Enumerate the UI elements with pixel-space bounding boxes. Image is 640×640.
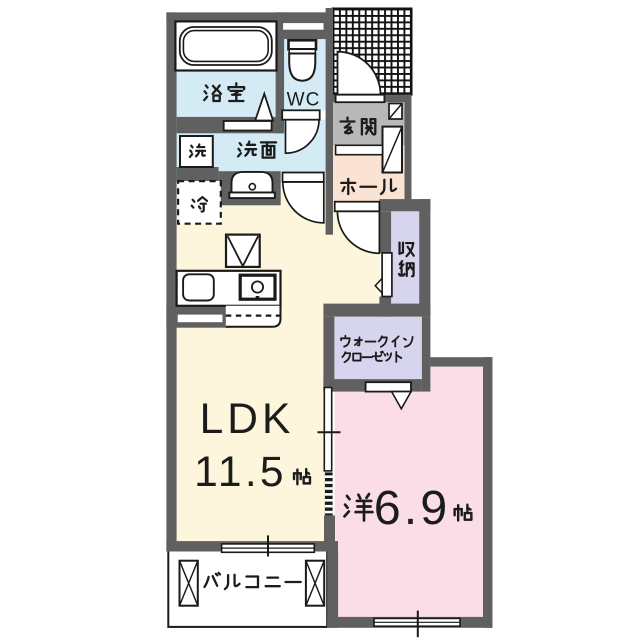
svg-text:LDK: LDK [200, 396, 295, 443]
svg-text:6.9: 6.9 [374, 481, 450, 535]
svg-text:11.5: 11.5 [194, 449, 287, 496]
svg-text:WC: WC [287, 90, 321, 111]
